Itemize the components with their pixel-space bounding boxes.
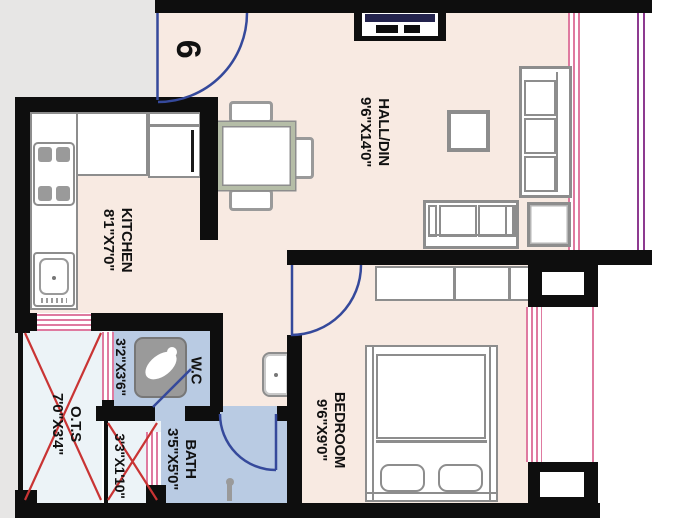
bath-label: BATH 3'5"X5'0" [163,424,199,494]
ots-name: O.T.S [66,386,84,462]
bath-name: BATH [181,424,199,494]
duct-dims-label: 3'3"X1'10" [111,427,129,505]
unit-number: 6 [168,29,208,69]
unit-number-text: 6 [168,29,208,69]
floor-plan: 6 HALL/DIN 9'6"X14'0" KITCHEN 8'1"X7'0" … [0,0,700,518]
hall-dims: 9'6"X14'0" [356,87,374,177]
kitchen-name: KITCHEN [117,198,135,282]
kitchen-label: KITCHEN 8'1"X7'0" [98,198,136,282]
bath-dims: 3'5"X5'0" [163,424,181,494]
bedroom-name: BEDROOM [330,386,348,474]
bedroom-label: BEDROOM 9'6"X9'0" [311,386,349,474]
hall-name: HALL/DIN [374,87,392,177]
ots-label: O.T.S 7'0"X3'4" [48,386,84,462]
bedroom-door-arc [291,265,361,335]
bath-door-arc [220,414,276,470]
bedroom-dims: 9'6"X9'0" [312,386,330,474]
hall-label: HALL/DIN 9'6"X14'0" [355,87,393,177]
duct-dims: 3'3"X1'10" [111,427,129,505]
wc-door-leaf [153,369,191,407]
ots-dims: 7'0"X3'4" [48,386,66,462]
wc-label: W.C [187,351,206,391]
kitchen-dims: 8'1"X7'0" [99,198,117,282]
wc-dims: 3'2"X3'6" [112,332,130,402]
wc-dims-label: 3'2"X3'6" [112,332,130,402]
wc-name: W.C [187,351,205,391]
